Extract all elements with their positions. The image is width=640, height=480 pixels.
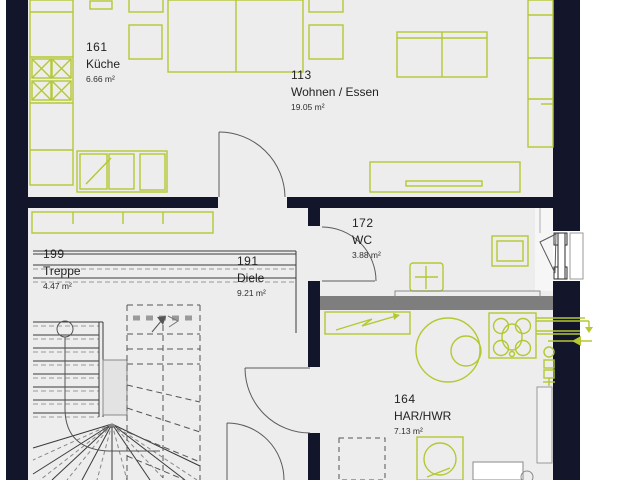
room-label-diele: 191 Diele 9.21 m²: [237, 254, 266, 298]
stair-newel: [103, 360, 127, 415]
room-number: 199: [43, 247, 81, 261]
room-number: 172: [352, 216, 381, 230]
room-number: 161: [86, 40, 120, 54]
room-name: HAR/HWR: [394, 409, 451, 423]
room-number: 113: [291, 68, 379, 82]
wall-right-lower: [553, 279, 580, 480]
wall-right-upper: [553, 0, 580, 233]
wall-gray-wc-hwr: [320, 296, 553, 310]
room-name: Küche: [86, 57, 120, 71]
room-name: Wohnen / Essen: [291, 85, 379, 99]
room-name: Treppe: [43, 264, 81, 278]
floor-plan: 161 Küche 6.66 m² 113 Wohnen / Essen 19.…: [0, 0, 640, 480]
room-number: 191: [237, 254, 266, 268]
room-area: 6.66 m²: [86, 74, 120, 84]
wall-stub-wc-top: [308, 208, 320, 226]
wall-left: [6, 0, 28, 480]
room-number: 164: [394, 392, 451, 406]
room-area: 7.13 m²: [394, 426, 451, 436]
wall-stub-bottom: [308, 433, 320, 480]
room-label-wc: 172 WC 3.88 m²: [352, 216, 381, 260]
wall-kitchen-south-right: [287, 197, 553, 208]
room-area: 4.47 m²: [43, 281, 81, 291]
room-label-kueche: 161 Küche 6.66 m²: [86, 40, 120, 84]
wall-stub-mid: [308, 281, 320, 367]
room-name: WC: [352, 233, 381, 247]
room-name: Diele: [237, 271, 266, 285]
room-label-har-hwr: 164 HAR/HWR 7.13 m²: [394, 392, 451, 436]
room-area: 3.88 m²: [352, 250, 381, 260]
room-label-wohnen: 113 Wohnen / Essen 19.05 m²: [291, 68, 379, 112]
duct-symbol: [537, 387, 552, 463]
room-area: 19.05 m²: [291, 102, 379, 112]
room-area: 9.21 m²: [237, 288, 266, 298]
wall-kitchen-south-left: [28, 197, 218, 208]
room-label-treppe: 199 Treppe 4.47 m²: [43, 247, 81, 291]
